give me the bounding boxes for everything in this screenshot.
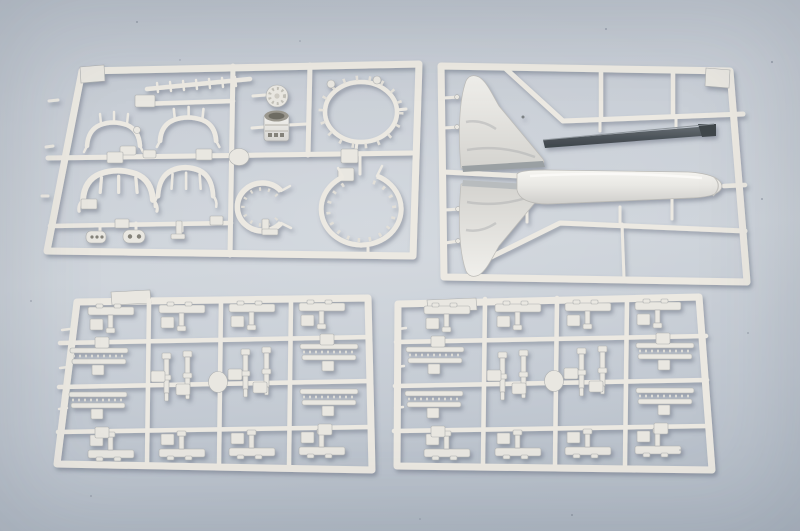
scene [0,0,800,531]
molded-pad-part [95,427,109,438]
canopy-frame-part [157,107,220,147]
grid-sprue-contents [58,299,371,466]
rail-bracket-part [229,301,275,330]
rail-bracket-part [159,431,205,460]
rail-bracket-part [299,300,345,329]
engine-cylinder-part [264,111,289,142]
canopy-frame-part [155,168,217,207]
sprue-top-left [42,64,419,256]
sprue-top-right [441,66,747,282]
molded-pad-part [318,424,332,435]
molded-pad-part [176,384,190,395]
sprue-bottom-right [394,297,712,470]
molded-pad-part [95,337,109,348]
rail-bracket-part [88,304,134,333]
molded-pad-part [253,382,267,393]
track-bar-part [300,389,358,416]
rail-bracket-part [159,302,205,331]
molded-pad-part [151,371,165,382]
oval-disc-part [229,149,249,166]
knurled-disc-part [266,85,288,107]
rail-bracket-part [229,430,275,459]
frame-tab [80,65,105,83]
photo-backdrop [0,0,800,531]
grid-sprue-contents [394,298,707,465]
frame-tab [705,68,730,88]
track-bar-part [70,348,128,375]
stabilator-dark-part [543,124,716,148]
molded-pad-part [320,334,334,345]
pylon-pin-part [241,349,250,397]
track-bar-part [69,392,127,419]
tank-half-part [517,170,722,204]
molded-pad-part [228,369,242,380]
sprue-bottom-left [57,290,372,470]
track-bar-part [300,344,358,371]
sprue-gate-disc [209,372,228,393]
frame-tab [111,290,151,305]
intake-ring-part-2 [321,166,401,245]
